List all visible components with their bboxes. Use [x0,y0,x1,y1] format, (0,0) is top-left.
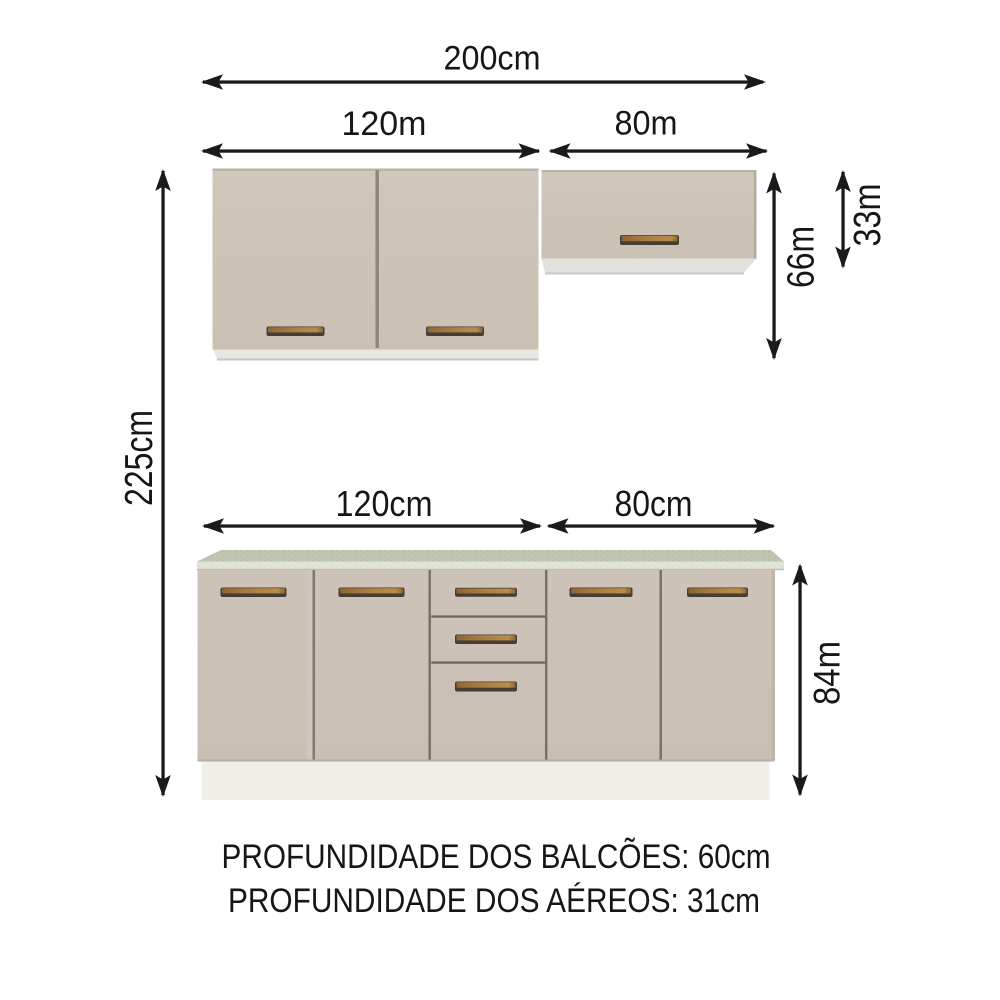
svg-text:PROFUNDIDADE DOS AÉREOS: 31cm: PROFUNDIDADE DOS AÉREOS: 31cm [228,882,760,920]
svg-text:120cm: 120cm [336,483,433,524]
svg-text:200cm: 200cm [444,40,541,78]
svg-text:66m: 66m [781,226,823,288]
svg-text:120m: 120m [342,105,427,143]
svg-text:80m: 80m [615,105,678,143]
svg-text:225cm: 225cm [118,410,161,506]
svg-text:80cm: 80cm [615,483,693,524]
svg-text:PROFUNDIDADE DOS BALCÕES: 60cm: PROFUNDIDADE DOS BALCÕES: 60cm [222,838,771,876]
svg-text:84m: 84m [807,641,848,705]
svg-text:33m: 33m [847,184,889,247]
